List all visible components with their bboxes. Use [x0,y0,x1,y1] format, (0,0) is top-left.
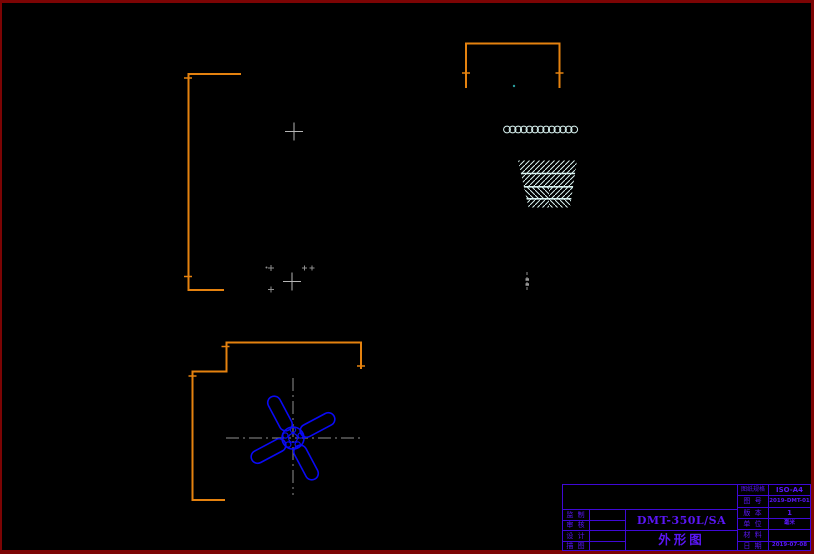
tb-label-date: 日 期 [737,541,769,551]
left-view-center-marks [266,123,315,293]
hatched-section-entity [514,160,580,209]
tb-value-miaotu [589,541,626,551]
tb-drawing-title: 外形图 [625,530,738,551]
tb-label-miaotu: 描 图 [562,541,590,551]
page-border-left [0,0,2,554]
small-centerline-mark [526,272,530,292]
left-view-dimension-bracket [184,74,241,290]
top-view-dimension [462,44,564,89]
cad-drawing-screen: 监 制 审 核 设 计 描 图 DMT-350L/SA 外形图 图纸规格 ISO… [0,0,814,554]
tb-value-date: 2019-07-08 [768,541,811,551]
page-border-top [0,0,814,3]
stray-point [513,85,515,87]
coil-chain-entity [504,126,578,133]
tb-model-number: DMT-350L/SA [625,509,738,531]
drawing-canvas[interactable] [0,0,814,554]
impeller-centerlines [226,378,361,495]
title-block: 监 制 审 核 设 计 描 图 DMT-350L/SA 外形图 图纸规格 ISO… [562,484,811,551]
title-block-company-cell [562,484,738,510]
